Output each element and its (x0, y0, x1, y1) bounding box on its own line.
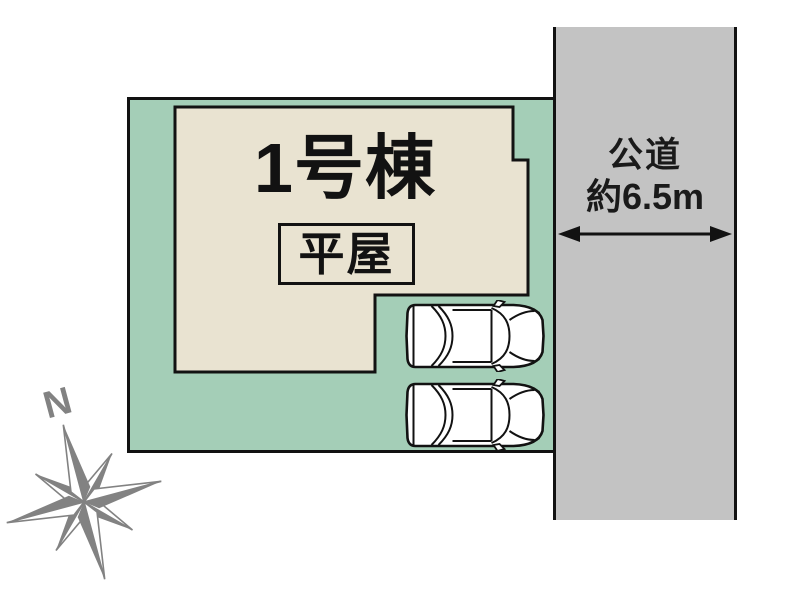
compass-rose-icon: N (2, 382, 178, 594)
road-width-arrow-icon (556, 223, 734, 245)
road-area: 公道 約6.5m (553, 27, 737, 520)
car-icon (403, 300, 546, 372)
road-width-value: 約6.5m (556, 176, 734, 218)
building-type-label: 平屋 (299, 231, 395, 277)
building-type-badge: 平屋 (278, 223, 415, 285)
road-label: 公道 約6.5m (556, 135, 734, 219)
building-name-label: 1号棟 (175, 127, 515, 209)
car-icon (403, 379, 546, 451)
site-plan-canvas: 公道 約6.5m 1号棟 平屋 (0, 0, 800, 599)
road-name: 公道 (556, 135, 734, 176)
compass-north-label: N (39, 382, 76, 427)
